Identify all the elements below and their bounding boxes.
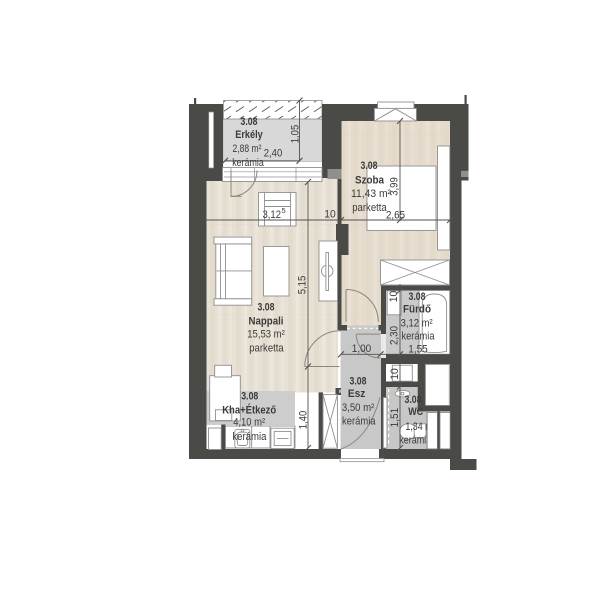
svg-text:3,12 m²: 3,12 m² [401,318,433,330]
svg-text:Kha+Étkező: Kha+Étkező [222,404,276,417]
svg-text:10: 10 [389,368,401,380]
svg-text:15,53 m²: 15,53 m² [247,329,285,341]
svg-text:1,05: 1,05 [290,125,302,144]
svg-text:1,55: 1,55 [408,344,428,356]
svg-text:3,12: 3,12 [263,209,282,221]
svg-text:kerámia: kerámia [232,157,264,169]
svg-text:kerámia: kerámia [342,416,376,428]
svg-text:3.08: 3.08 [241,391,258,403]
svg-text:kerámia: kerámia [402,331,436,343]
svg-text:3.08: 3.08 [405,394,422,406]
svg-text:Fürdő: Fürdő [403,304,431,316]
svg-text:3.08: 3.08 [409,291,426,303]
svg-text:3.08: 3.08 [241,116,258,128]
svg-text:3.08: 3.08 [258,302,275,314]
svg-text:1,51: 1,51 [389,408,401,428]
svg-text:2,30: 2,30 [389,326,401,345]
svg-text:1,00: 1,00 [352,343,372,355]
svg-text:2,88 m²: 2,88 m² [233,143,262,155]
svg-text:parketta: parketta [249,343,284,355]
svg-text:Esz: Esz [348,388,366,400]
svg-text:Szoba: Szoba [355,175,385,187]
svg-text:2,40: 2,40 [264,148,283,160]
svg-text:5,15: 5,15 [297,276,309,295]
svg-text:11,43 m²: 11,43 m² [351,188,391,200]
svg-text:Erkély: Erkély [235,129,263,141]
svg-text:Nappali: Nappali [249,316,284,328]
svg-text:3.08: 3.08 [350,376,367,388]
svg-text:parketta: parketta [352,202,387,214]
svg-text:3,99: 3,99 [389,177,401,196]
svg-text:3,50 m²: 3,50 m² [342,402,375,414]
svg-text:10: 10 [388,291,400,303]
svg-text:3.08: 3.08 [361,160,378,172]
svg-text:1,40: 1,40 [298,411,310,430]
svg-text:WC: WC [408,406,423,418]
svg-text:10: 10 [324,209,336,221]
svg-text:kerámia: kerámia [232,431,267,443]
svg-text:4,10 m²: 4,10 m² [233,417,265,429]
svg-text:2,65: 2,65 [386,210,405,222]
svg-text:5: 5 [282,206,286,215]
